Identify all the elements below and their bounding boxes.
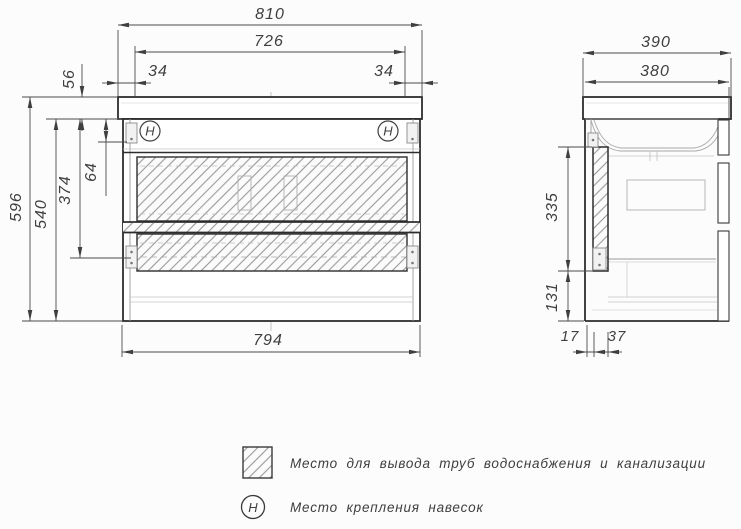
pipe-zone-hatch-rail bbox=[123, 223, 420, 233]
hanger-mark-icon-right: H bbox=[378, 121, 398, 141]
pipe-zone-hatch-upper bbox=[137, 157, 407, 221]
dim-front-wall-offset: 17 bbox=[561, 328, 580, 345]
dim-pipe-zone-height: 335 bbox=[544, 192, 561, 222]
side-bracket-bottom bbox=[593, 248, 606, 270]
side-bracket-top bbox=[588, 133, 598, 147]
side-view bbox=[583, 97, 731, 321]
mount-bracket-bottom-right bbox=[407, 246, 418, 268]
mount-bracket-top-left bbox=[126, 123, 137, 143]
dim-hanger-span: 374 bbox=[57, 175, 74, 205]
side-countertop bbox=[583, 97, 731, 119]
dim-side-offset-left: 34 bbox=[148, 63, 168, 80]
dim-total-width: 810 bbox=[255, 6, 285, 23]
dim-cabinet-width: 794 bbox=[253, 332, 283, 349]
front-countertop bbox=[118, 97, 422, 119]
dim-pipe-zone-depth: 37 bbox=[608, 328, 627, 345]
hatched-square-icon bbox=[243, 447, 272, 478]
dim-basin-width: 726 bbox=[254, 33, 284, 50]
dim-side-offset-right: 34 bbox=[374, 63, 394, 80]
dim-bottom-section-height: 131 bbox=[544, 282, 561, 312]
dim-hanger-offset: 64 bbox=[83, 162, 100, 182]
legend-item-pipe-zone: Место для вывода труб водоснабжения и ка… bbox=[243, 447, 706, 478]
basin-profile bbox=[591, 120, 724, 151]
legend: Место для вывода труб водоснабжения и ка… bbox=[242, 447, 706, 519]
drawing-sheet: H H bbox=[0, 0, 741, 529]
hanger-mark-letter: H bbox=[383, 124, 393, 139]
dim-countertop-height: 56 bbox=[61, 69, 78, 89]
back-panel-segments bbox=[718, 120, 729, 321]
dim-overall-height: 596 bbox=[8, 192, 25, 222]
legend-hanger-label: Место крепления навесок bbox=[290, 500, 484, 515]
pipe-zone-hatch-lower bbox=[137, 234, 407, 271]
legend-item-hanger: H Место крепления навесок bbox=[242, 496, 484, 519]
hanger-mark-icon-left: H bbox=[140, 121, 160, 141]
mount-bracket-top-right bbox=[407, 123, 418, 143]
hanger-mark-letter: H bbox=[145, 124, 155, 139]
legend-pipe-zone-label: Место для вывода труб водоснабжения и ка… bbox=[290, 456, 706, 471]
mount-bracket-bottom-left bbox=[126, 246, 137, 268]
hanger-mark-letter: H bbox=[248, 500, 258, 515]
dim-cabinet-height: 540 bbox=[33, 199, 50, 229]
front-view: H H bbox=[118, 92, 422, 331]
vanity-technical-drawing: H H bbox=[0, 0, 741, 529]
dim-total-depth: 390 bbox=[641, 34, 671, 51]
dim-cabinet-depth: 380 bbox=[640, 63, 670, 80]
